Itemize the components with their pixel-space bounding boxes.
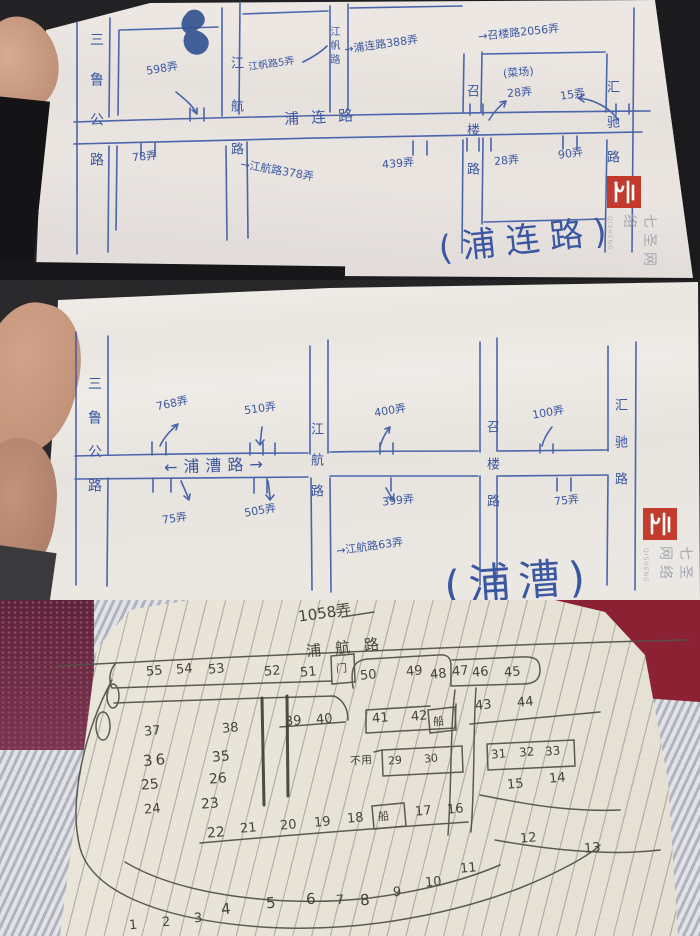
stall-number: 2 [161, 915, 171, 931]
photo-middle-map: 三鲁公路 江航路 召楼路 汇驰路 ←浦漕路→ 768弄 510弄 400弄 10… [0, 280, 700, 600]
stall-number: 52 [263, 663, 281, 679]
house-number-label: 28弄 [506, 83, 532, 101]
house-number-label: 399弄 [381, 490, 414, 509]
stall-number: 11 [459, 860, 477, 876]
house-number-label: 78弄 [131, 147, 158, 166]
stall-number: 54 [175, 661, 193, 677]
stall-number: 19 [313, 814, 331, 830]
stall-number: 10 [424, 874, 442, 890]
house-number-label: 28弄 [493, 151, 519, 169]
stall-number: 45 [503, 664, 521, 680]
stall-number: 9 [392, 885, 402, 901]
stall-number: 40 [315, 711, 333, 727]
watermark-en-text: QISHENG [642, 548, 649, 583]
stall-number: 35 [211, 748, 230, 765]
road-name-jianghang: 江航路 [306, 422, 325, 515]
stall-number: 7 [335, 893, 345, 909]
road-name-jiangfan: 江帆路 [326, 26, 341, 68]
qisheng-seal-icon [607, 176, 641, 208]
stall-number: 5 [265, 894, 276, 913]
qisheng-watermark: 七圣网络 QISHENG [640, 508, 700, 600]
stall-number: 22 [206, 824, 225, 841]
watermark-en-text: QISHENG [606, 216, 613, 251]
stall-number: 51 [299, 664, 317, 680]
stall-number: 36 [142, 750, 169, 770]
stall-number: 42 [410, 708, 428, 724]
stall-number: 12 [519, 830, 537, 846]
stall-number: 31 [490, 746, 506, 761]
stall-number: 15 [506, 776, 524, 792]
stall-number: 50 [359, 667, 377, 683]
stall-number: 55 [145, 663, 163, 679]
stall-number: 1 [128, 918, 138, 934]
qisheng-watermark: 七圣网络 QISHENG [604, 176, 664, 280]
stall-number: 38 [221, 720, 239, 736]
gate-label: 门 [335, 660, 347, 677]
stall-number: 3 [193, 911, 203, 927]
stall-number: 48 [429, 666, 447, 682]
stall-number: 41 [371, 710, 389, 726]
stall-number: 47 [451, 663, 469, 679]
stall-number: 14 [548, 770, 566, 786]
stall-number: 33 [544, 743, 560, 758]
stall-number: 25 [140, 776, 159, 793]
road-name-zhaolou: 召楼路 [482, 420, 501, 531]
stall-number: 23 [200, 795, 219, 812]
stall-number: 44 [516, 694, 534, 710]
boat-label: 船 [432, 713, 444, 730]
stall-number: 6 [305, 890, 316, 909]
road-name-huichi: 汇驰路 [602, 80, 621, 185]
road-name-sanlu: 三鲁公路 [86, 32, 106, 192]
stall-number: 30 [423, 751, 438, 765]
qisheng-seal-icon [643, 508, 677, 540]
composite-photo: 三鲁公路 江航路 江帆路 召楼路 汇驰路 浦连路 598弄 江帆路5弄 →浦连路… [0, 0, 700, 936]
stall-number: 37 [143, 723, 161, 739]
road-name-sanlu: 三鲁公路 [84, 376, 104, 512]
ink-blot [181, 10, 208, 55]
stall-number: 53 [207, 661, 225, 677]
boat-label: 船 [377, 808, 389, 825]
stall-number: 43 [474, 697, 492, 713]
road-name-huichi: 汇驰路 [610, 398, 629, 509]
house-number-label: 75弄 [161, 508, 188, 527]
house-number-label: 90弄 [557, 143, 584, 162]
house-number-label: 439弄 [381, 154, 414, 173]
road-name-zhaolou: 召楼路 [462, 84, 481, 201]
stall-number: 20 [279, 817, 297, 833]
watermark-cn-text: 七圣网络 [620, 214, 660, 280]
stall-number: 26 [208, 770, 227, 787]
big-road-note: (浦漕) [442, 543, 595, 600]
stall-number: 46 [471, 664, 489, 680]
road-name-pulian: 浦连路 [284, 104, 366, 129]
stall-number: 18 [346, 810, 364, 826]
house-number-label: 75弄 [553, 491, 580, 510]
stall-number: 29 [387, 753, 402, 767]
stall-number: 8 [359, 891, 370, 910]
watermark-cn-text: 七圣网络 [656, 546, 696, 600]
stall-number: 39 [284, 713, 302, 729]
stall-number: 21 [239, 820, 257, 836]
unused-note: 不用 [349, 751, 372, 769]
stall-number: 16 [446, 801, 464, 817]
photo-top-map: 三鲁公路 江航路 江帆路 召楼路 汇驰路 浦连路 598弄 江帆路5弄 →浦连路… [0, 0, 700, 280]
stall-number: 49 [405, 663, 423, 679]
stall-number: 24 [143, 801, 161, 817]
stall-number: 17 [414, 803, 432, 819]
house-number-label: 15弄 [559, 84, 586, 103]
stall-number: 13 [583, 840, 601, 856]
photo-notebook-sketch: 1058弄 浦航路 55 54 53 52 51 门 50 49 48 47 4… [0, 600, 700, 936]
stall-number: 4 [220, 900, 231, 919]
stall-number: 32 [518, 744, 534, 759]
market-note: (菜场) [502, 63, 534, 82]
road-name-pucao: ←浦漕路→ [164, 450, 270, 478]
